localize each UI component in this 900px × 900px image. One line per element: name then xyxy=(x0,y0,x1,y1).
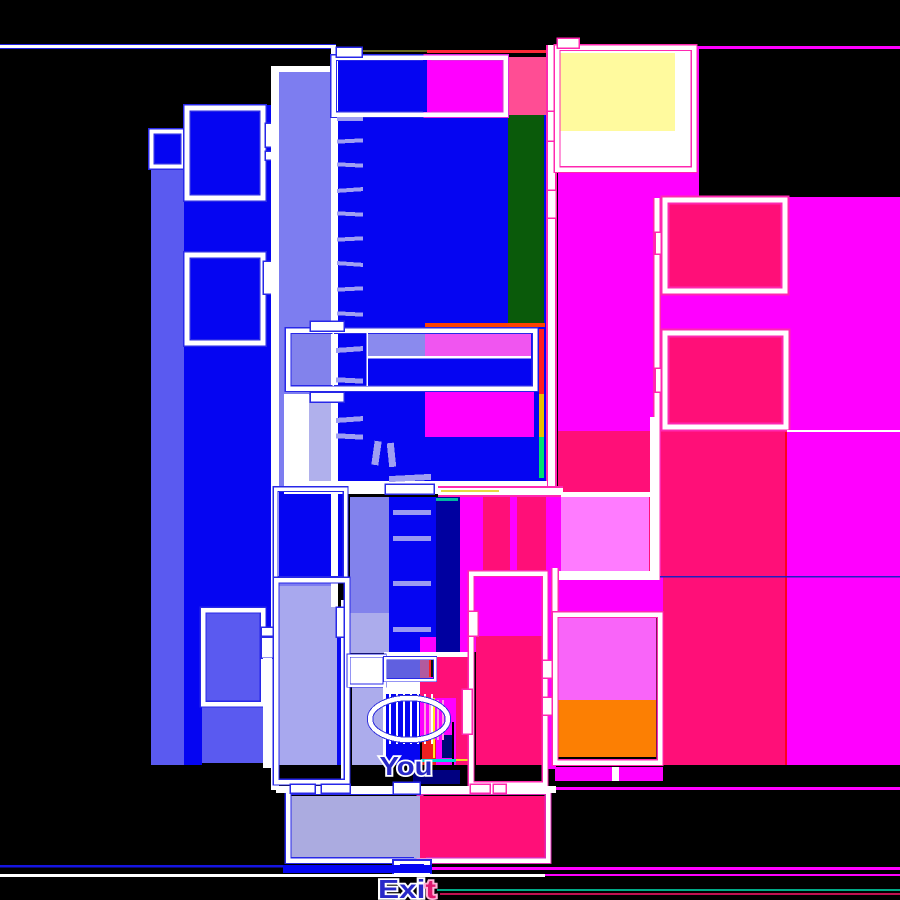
svg-text:You: You xyxy=(380,751,433,781)
svg-text:Exit: Exit xyxy=(378,874,436,900)
